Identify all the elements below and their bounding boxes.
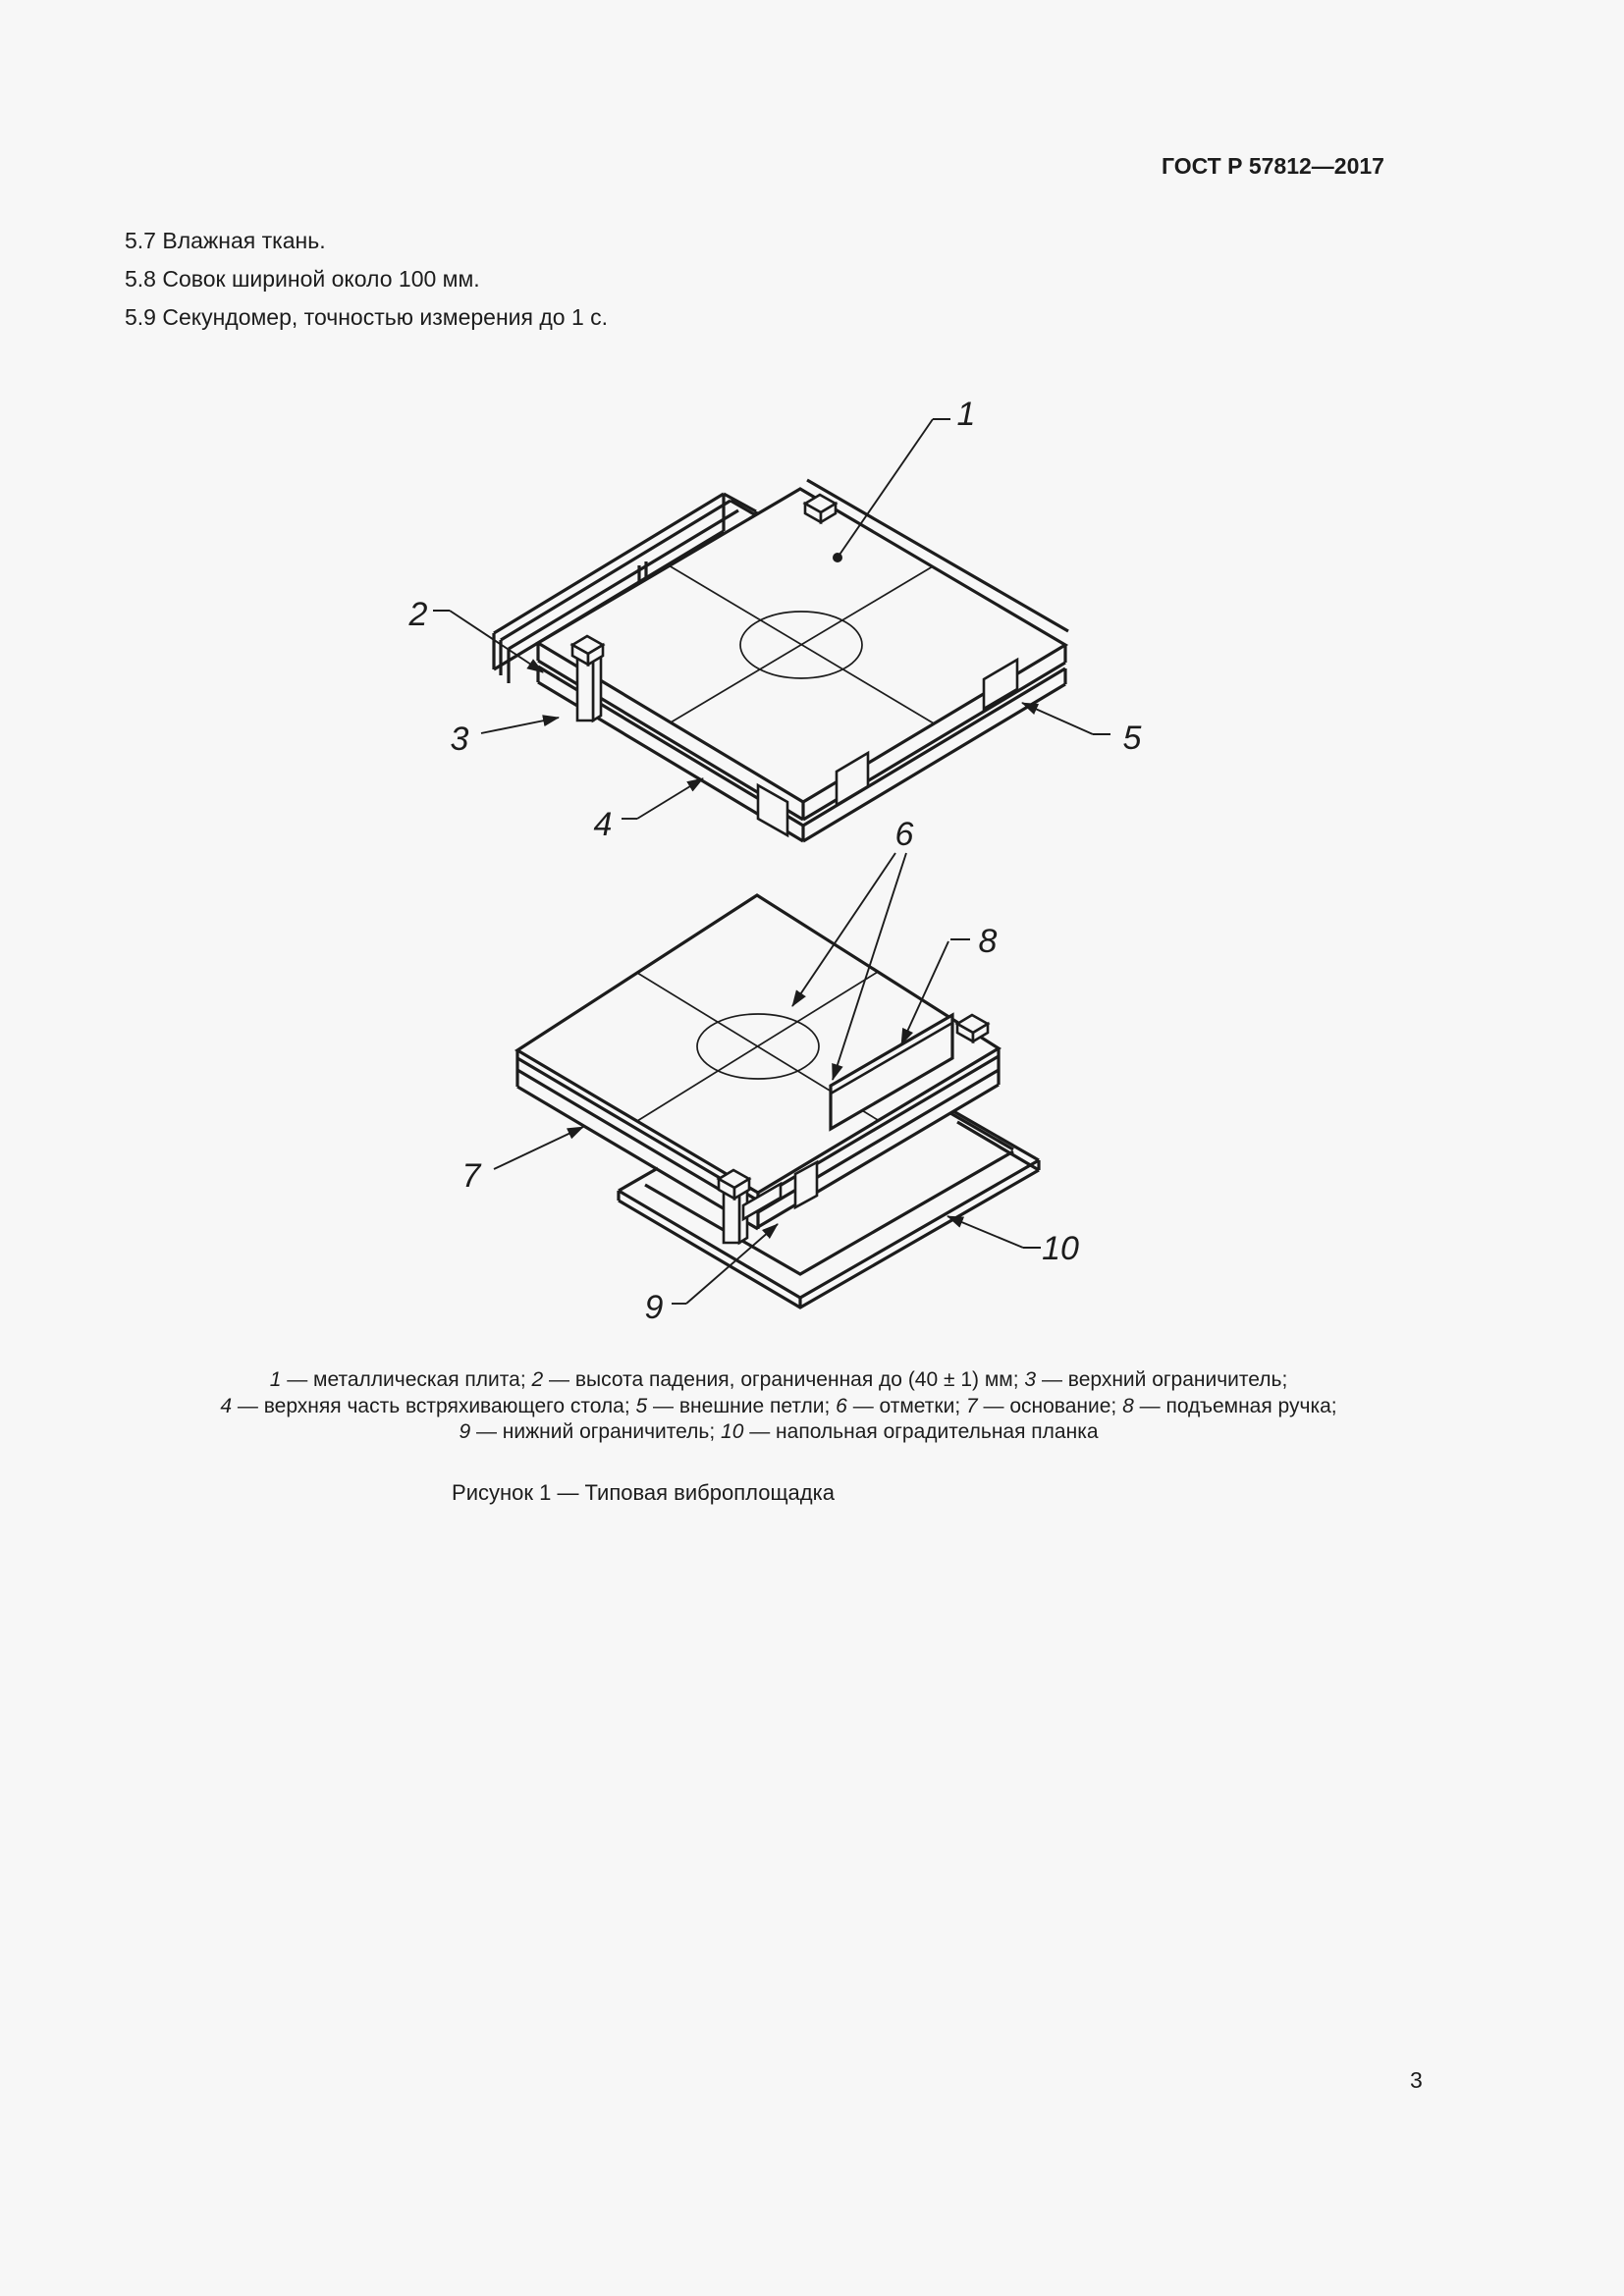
figure-caption: Рисунок 1 — Типовая виброплощадка bbox=[152, 1480, 1134, 1506]
legend-line-2: 4 — верхняя часть встряхивающего стола; … bbox=[140, 1394, 1417, 1420]
floor-guard-frame bbox=[619, 1151, 1039, 1308]
page-number: 3 bbox=[1410, 2067, 1423, 2094]
lower-figure-base-assembly bbox=[517, 895, 1039, 1308]
legend-line-3: 9 — нижний ограничитель; 10 — напольная … bbox=[140, 1419, 1417, 1446]
callout-3: 3 bbox=[451, 721, 469, 758]
upper-limiter-post bbox=[572, 636, 603, 721]
callout-1: 1 bbox=[957, 396, 976, 433]
callout-4: 4 bbox=[594, 806, 613, 843]
leader-5 bbox=[1022, 703, 1110, 734]
hinge-tab-left-south bbox=[758, 785, 787, 835]
leader-2 bbox=[433, 611, 543, 672]
document-page: ГОСТ Р 57812—2017 5.7 Влажная ткань. 5.8… bbox=[0, 0, 1624, 2296]
upper-figure-table-top-assembly bbox=[494, 480, 1068, 841]
callout-6: 6 bbox=[895, 816, 914, 853]
leader-1-dot bbox=[833, 553, 842, 562]
leader-4 bbox=[622, 778, 703, 819]
callout-9: 9 bbox=[645, 1289, 664, 1326]
callout-10: 10 bbox=[1042, 1230, 1079, 1267]
leader-7 bbox=[494, 1127, 583, 1169]
figure-legend: 1 — металлическая плита; 2 — высота паде… bbox=[140, 1367, 1417, 1446]
callout-2: 2 bbox=[408, 596, 428, 633]
callout-8: 8 bbox=[979, 923, 998, 960]
leader-3 bbox=[481, 718, 559, 733]
leader-10 bbox=[947, 1216, 1041, 1248]
callout-7: 7 bbox=[462, 1157, 482, 1195]
figure-1-vibration-platform-drawing: 1 2 3 4 5 6 7 8 9 10 bbox=[0, 0, 1624, 2296]
callout-5: 5 bbox=[1123, 720, 1142, 757]
legend-line-1: 1 — металлическая плита; 2 — высота паде… bbox=[140, 1367, 1417, 1394]
